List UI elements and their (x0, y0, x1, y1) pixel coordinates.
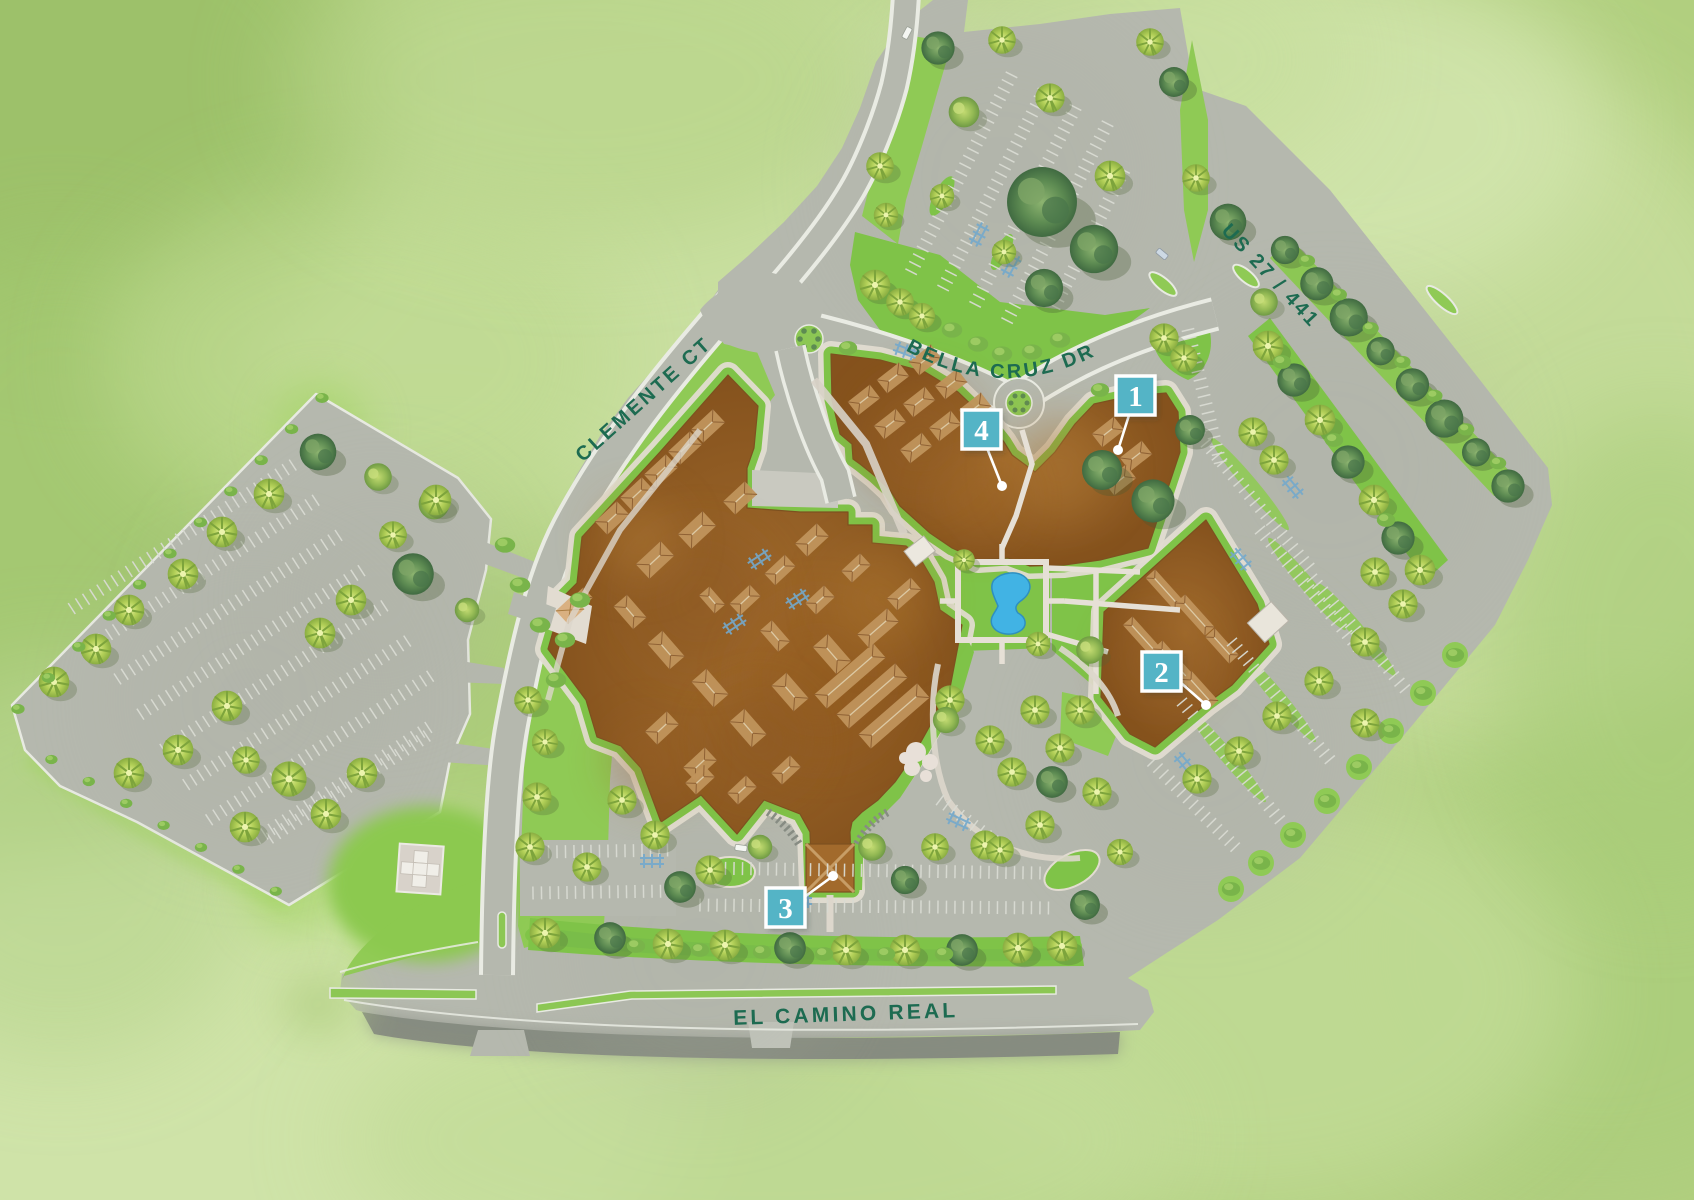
svg-text:4: 4 (974, 415, 989, 447)
svg-text:2: 2 (1154, 657, 1169, 689)
svg-text:1: 1 (1128, 381, 1143, 413)
svg-text:3: 3 (778, 893, 793, 925)
